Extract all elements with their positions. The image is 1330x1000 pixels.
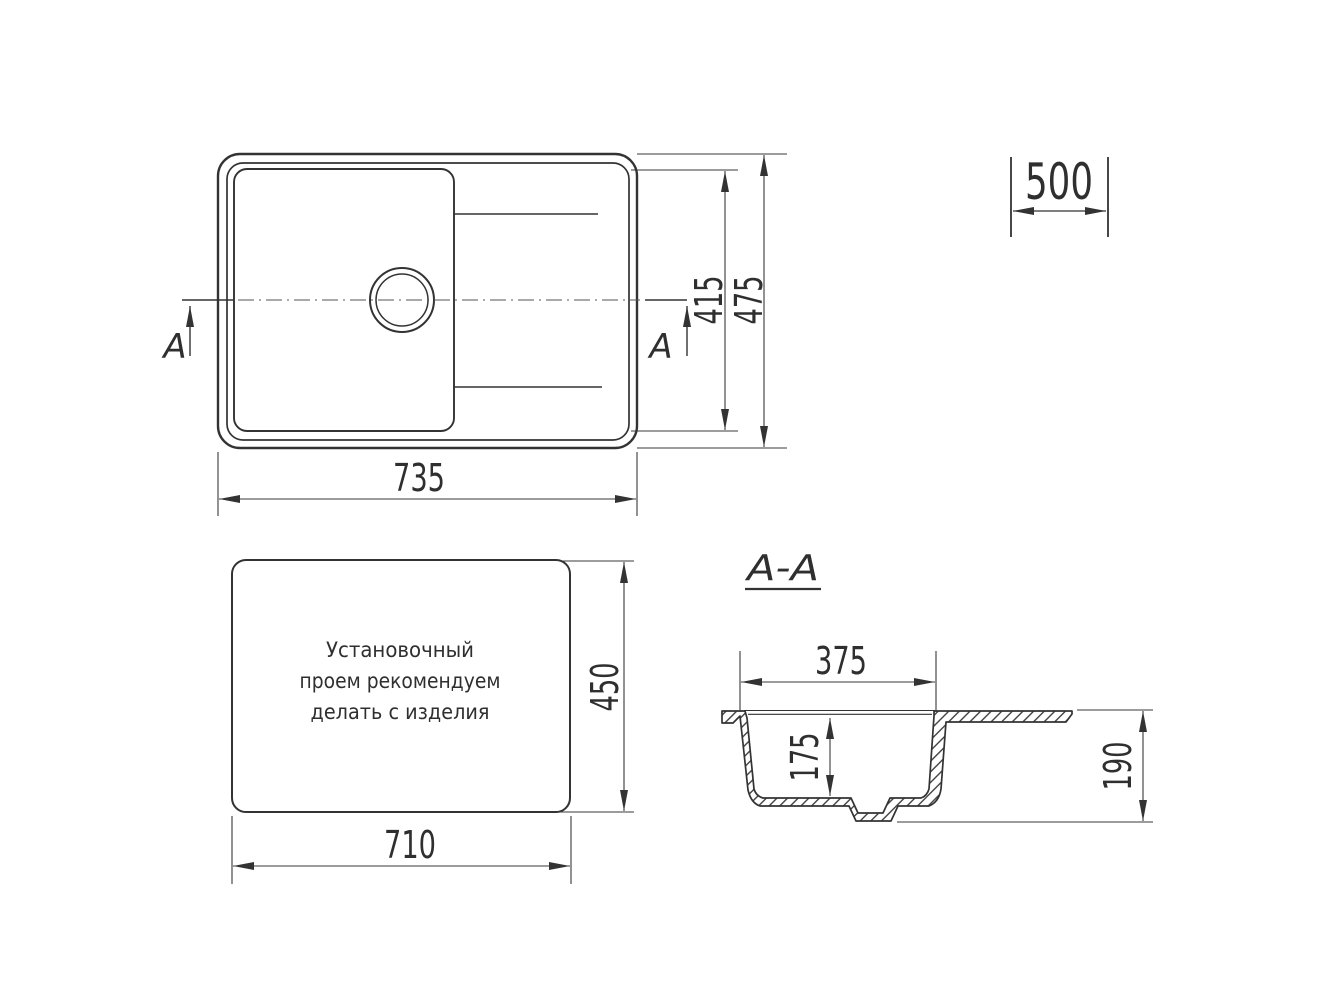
install-note-line1: Установочный <box>326 638 474 663</box>
section-label-left: A <box>161 327 186 367</box>
install-opening-view: Установочный проем рекомендуем делать с … <box>232 560 570 812</box>
dim-label-415: 415 <box>687 276 731 325</box>
dimension-bowl-depth-175: 175 <box>783 718 830 796</box>
dimension-overall-width-735: 735 <box>218 452 637 516</box>
section-label-right: A <box>647 327 672 367</box>
dim-label-710: 710 <box>384 823 436 867</box>
drawing-canvas: A A 415 475 735 500 Установочный проем р… <box>0 0 1330 1000</box>
top-view <box>182 154 640 448</box>
dim-label-450: 450 <box>583 663 627 712</box>
dim-label-735: 735 <box>393 456 445 500</box>
install-note-line2: проем рекомендуем <box>300 669 501 694</box>
dimension-cabinet-width-500: 500 <box>1011 153 1108 237</box>
dimension-opening-width-710: 710 <box>232 816 571 884</box>
sink-technical-drawing: A A 415 475 735 500 Установочный проем р… <box>0 0 1330 1000</box>
dimension-opening-depth-450: 450 <box>560 561 634 812</box>
section-title: A-A <box>745 548 819 589</box>
section-view: A-A <box>722 548 1072 821</box>
install-note-line3: делать с изделия <box>311 700 490 725</box>
section-cut-marker-left: A <box>161 300 233 367</box>
dim-label-175: 175 <box>783 733 827 782</box>
dim-label-500: 500 <box>1025 153 1093 211</box>
dim-label-375: 375 <box>815 639 867 683</box>
dimension-bowl-width-375: 375 <box>740 639 936 712</box>
sink-body-section-cut <box>722 711 1072 821</box>
section-cut-marker-right: A <box>645 300 687 367</box>
dim-label-475: 475 <box>727 276 771 325</box>
dim-label-190: 190 <box>1096 742 1140 791</box>
